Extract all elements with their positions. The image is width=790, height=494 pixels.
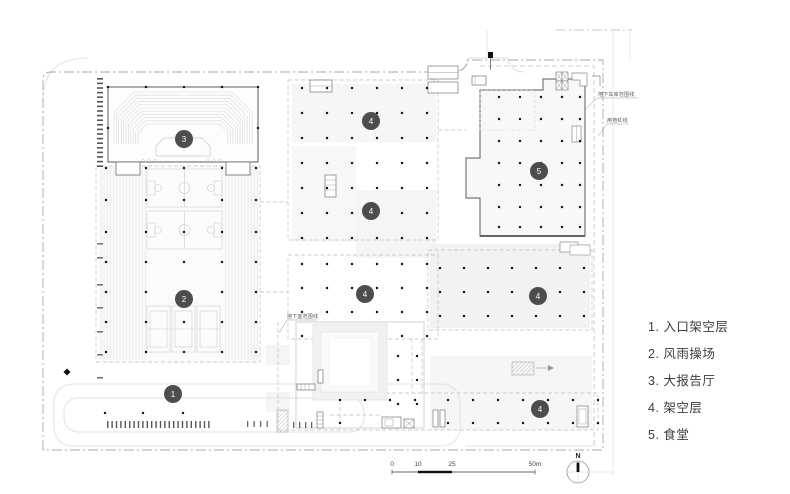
area-badge: 5 xyxy=(530,162,548,180)
legend-item-covered-playground: 2. 风雨操场 xyxy=(648,341,728,368)
svg-text:25: 25 xyxy=(448,461,456,468)
annotation-garage: 地下车库范围线 xyxy=(584,91,638,111)
area-badge: 1 xyxy=(164,385,182,403)
svg-text:10: 10 xyxy=(414,461,422,468)
svg-text:2: 2 xyxy=(182,295,187,304)
legend-item-lecture-hall: 3. 大报告厅 xyxy=(648,368,728,395)
svg-text:0: 0 xyxy=(390,461,394,468)
north-arrow-icon: N xyxy=(567,453,589,483)
svg-text:4: 4 xyxy=(363,290,368,299)
legend-item-entrance-stilt: 1. 入口架空层 xyxy=(648,314,728,341)
area-badge: 2 xyxy=(175,290,193,308)
svg-text:1: 1 xyxy=(171,390,176,399)
svg-text:5: 5 xyxy=(537,167,542,176)
legend: 1. 入口架空层 2. 风雨操场 3. 大报告厅 4. 架空层 5. 食堂 xyxy=(648,314,728,449)
area-badge: 4 xyxy=(362,202,380,220)
courtyard-block xyxy=(296,322,424,428)
svg-text:3: 3 xyxy=(182,135,187,144)
svg-text:用地红线: 用地红线 xyxy=(607,117,628,124)
svg-text:4: 4 xyxy=(369,117,374,126)
svg-text:地下车库范围线: 地下车库范围线 xyxy=(598,91,634,98)
svg-text:地下室范围线: 地下室范围线 xyxy=(287,313,318,320)
svg-text:4: 4 xyxy=(538,405,543,414)
area-badge: 4 xyxy=(356,285,374,303)
svg-text:4: 4 xyxy=(369,207,374,216)
svg-text:50m: 50m xyxy=(529,461,542,468)
area-badge: 4 xyxy=(362,112,380,130)
site-plan-canvas: 3 2 1 4 4 4 5 4 4 地下车库范围线 用地红线 地下室范围线 0 … xyxy=(0,0,790,494)
scale-bar: 0 10 25 50m xyxy=(390,461,541,475)
svg-text:4: 4 xyxy=(536,292,541,301)
area-badge: 3 xyxy=(175,130,193,148)
legend-item-canteen: 5. 食堂 xyxy=(648,422,728,449)
annotation-basement: 地下室范围线 xyxy=(279,313,318,333)
svg-text:N: N xyxy=(575,453,580,460)
area-badge: 4 xyxy=(529,287,547,305)
area-badge: 4 xyxy=(531,400,549,418)
legend-item-stilt-floor: 4. 架空层 xyxy=(648,395,728,422)
